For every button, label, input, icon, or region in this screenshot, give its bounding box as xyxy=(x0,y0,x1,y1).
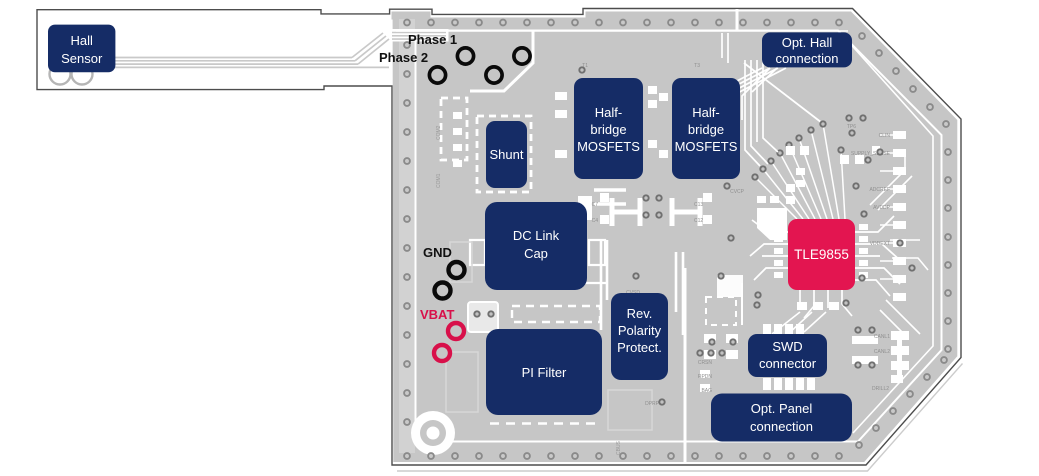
svg-text:C13: C13 xyxy=(694,202,703,208)
svg-text:RPDN: RPDN xyxy=(698,374,713,380)
svg-text:Rev.: Rev. xyxy=(627,306,653,321)
svg-text:Half-: Half- xyxy=(692,105,719,120)
svg-text:CRSN: CRSN xyxy=(698,360,713,366)
svg-text:bridge: bridge xyxy=(590,122,626,137)
svg-text:Opt. Panel: Opt. Panel xyxy=(751,401,813,416)
svg-text:C4: C4 xyxy=(592,218,599,224)
svg-text:CANL2: CANL2 xyxy=(874,349,890,355)
svg-text:Phase 1: Phase 1 xyxy=(408,32,457,47)
svg-text:MOSFETS: MOSFETS xyxy=(577,139,640,154)
svg-text:SWD: SWD xyxy=(772,339,802,354)
svg-text:connection: connection xyxy=(750,419,813,434)
svg-text:Shunt: Shunt xyxy=(490,147,524,162)
svg-text:SUPPLY_SENSE: SUPPLY_SENSE xyxy=(851,151,891,157)
svg-text:Hall: Hall xyxy=(70,33,93,48)
svg-text:DRILL2: DRILL2 xyxy=(872,386,889,392)
svg-text:TP6: TP6 xyxy=(847,124,856,130)
svg-text:Cap: Cap xyxy=(524,246,548,261)
svg-text:COM1: COM1 xyxy=(436,173,442,188)
svg-text:Protect.: Protect. xyxy=(617,340,662,355)
svg-text:CVCP: CVCP xyxy=(730,189,745,195)
svg-text:MOSFETS: MOSFETS xyxy=(675,139,738,154)
svg-text:T3: T3 xyxy=(694,63,700,69)
svg-text:CANL1: CANL1 xyxy=(874,334,890,340)
svg-text:COM2: COM2 xyxy=(436,125,442,140)
svg-text:AVDDP: AVDDP xyxy=(873,205,891,211)
svg-text:TLE9855: TLE9855 xyxy=(794,247,849,262)
svg-text:C12: C12 xyxy=(694,218,703,224)
svg-text:DPRP: DPRP xyxy=(645,401,660,407)
svg-text:Opt. Hall: Opt. Hall xyxy=(782,35,833,50)
svg-text:BAG: BAG xyxy=(701,388,712,394)
svg-text:ADCREF: ADCREF xyxy=(869,187,890,193)
svg-text:DC Link: DC Link xyxy=(513,228,560,243)
svg-text:Phase 2: Phase 2 xyxy=(379,50,428,65)
svg-text:PI Filter: PI Filter xyxy=(522,365,567,380)
svg-text:VDDEXT: VDDEXT xyxy=(870,241,890,247)
svg-text:C7: C7 xyxy=(592,202,599,208)
svg-text:Polarity: Polarity xyxy=(618,323,662,338)
svg-text:Half-: Half- xyxy=(595,105,622,120)
svg-text:GND: GND xyxy=(423,245,452,260)
svg-text:connector: connector xyxy=(759,356,817,371)
svg-text:connection: connection xyxy=(776,51,839,66)
svg-text:Sensor: Sensor xyxy=(61,51,103,66)
svg-text:CLIN: CLIN xyxy=(879,133,891,139)
svg-text:VBAT: VBAT xyxy=(420,307,454,322)
svg-text:bridge: bridge xyxy=(688,122,724,137)
